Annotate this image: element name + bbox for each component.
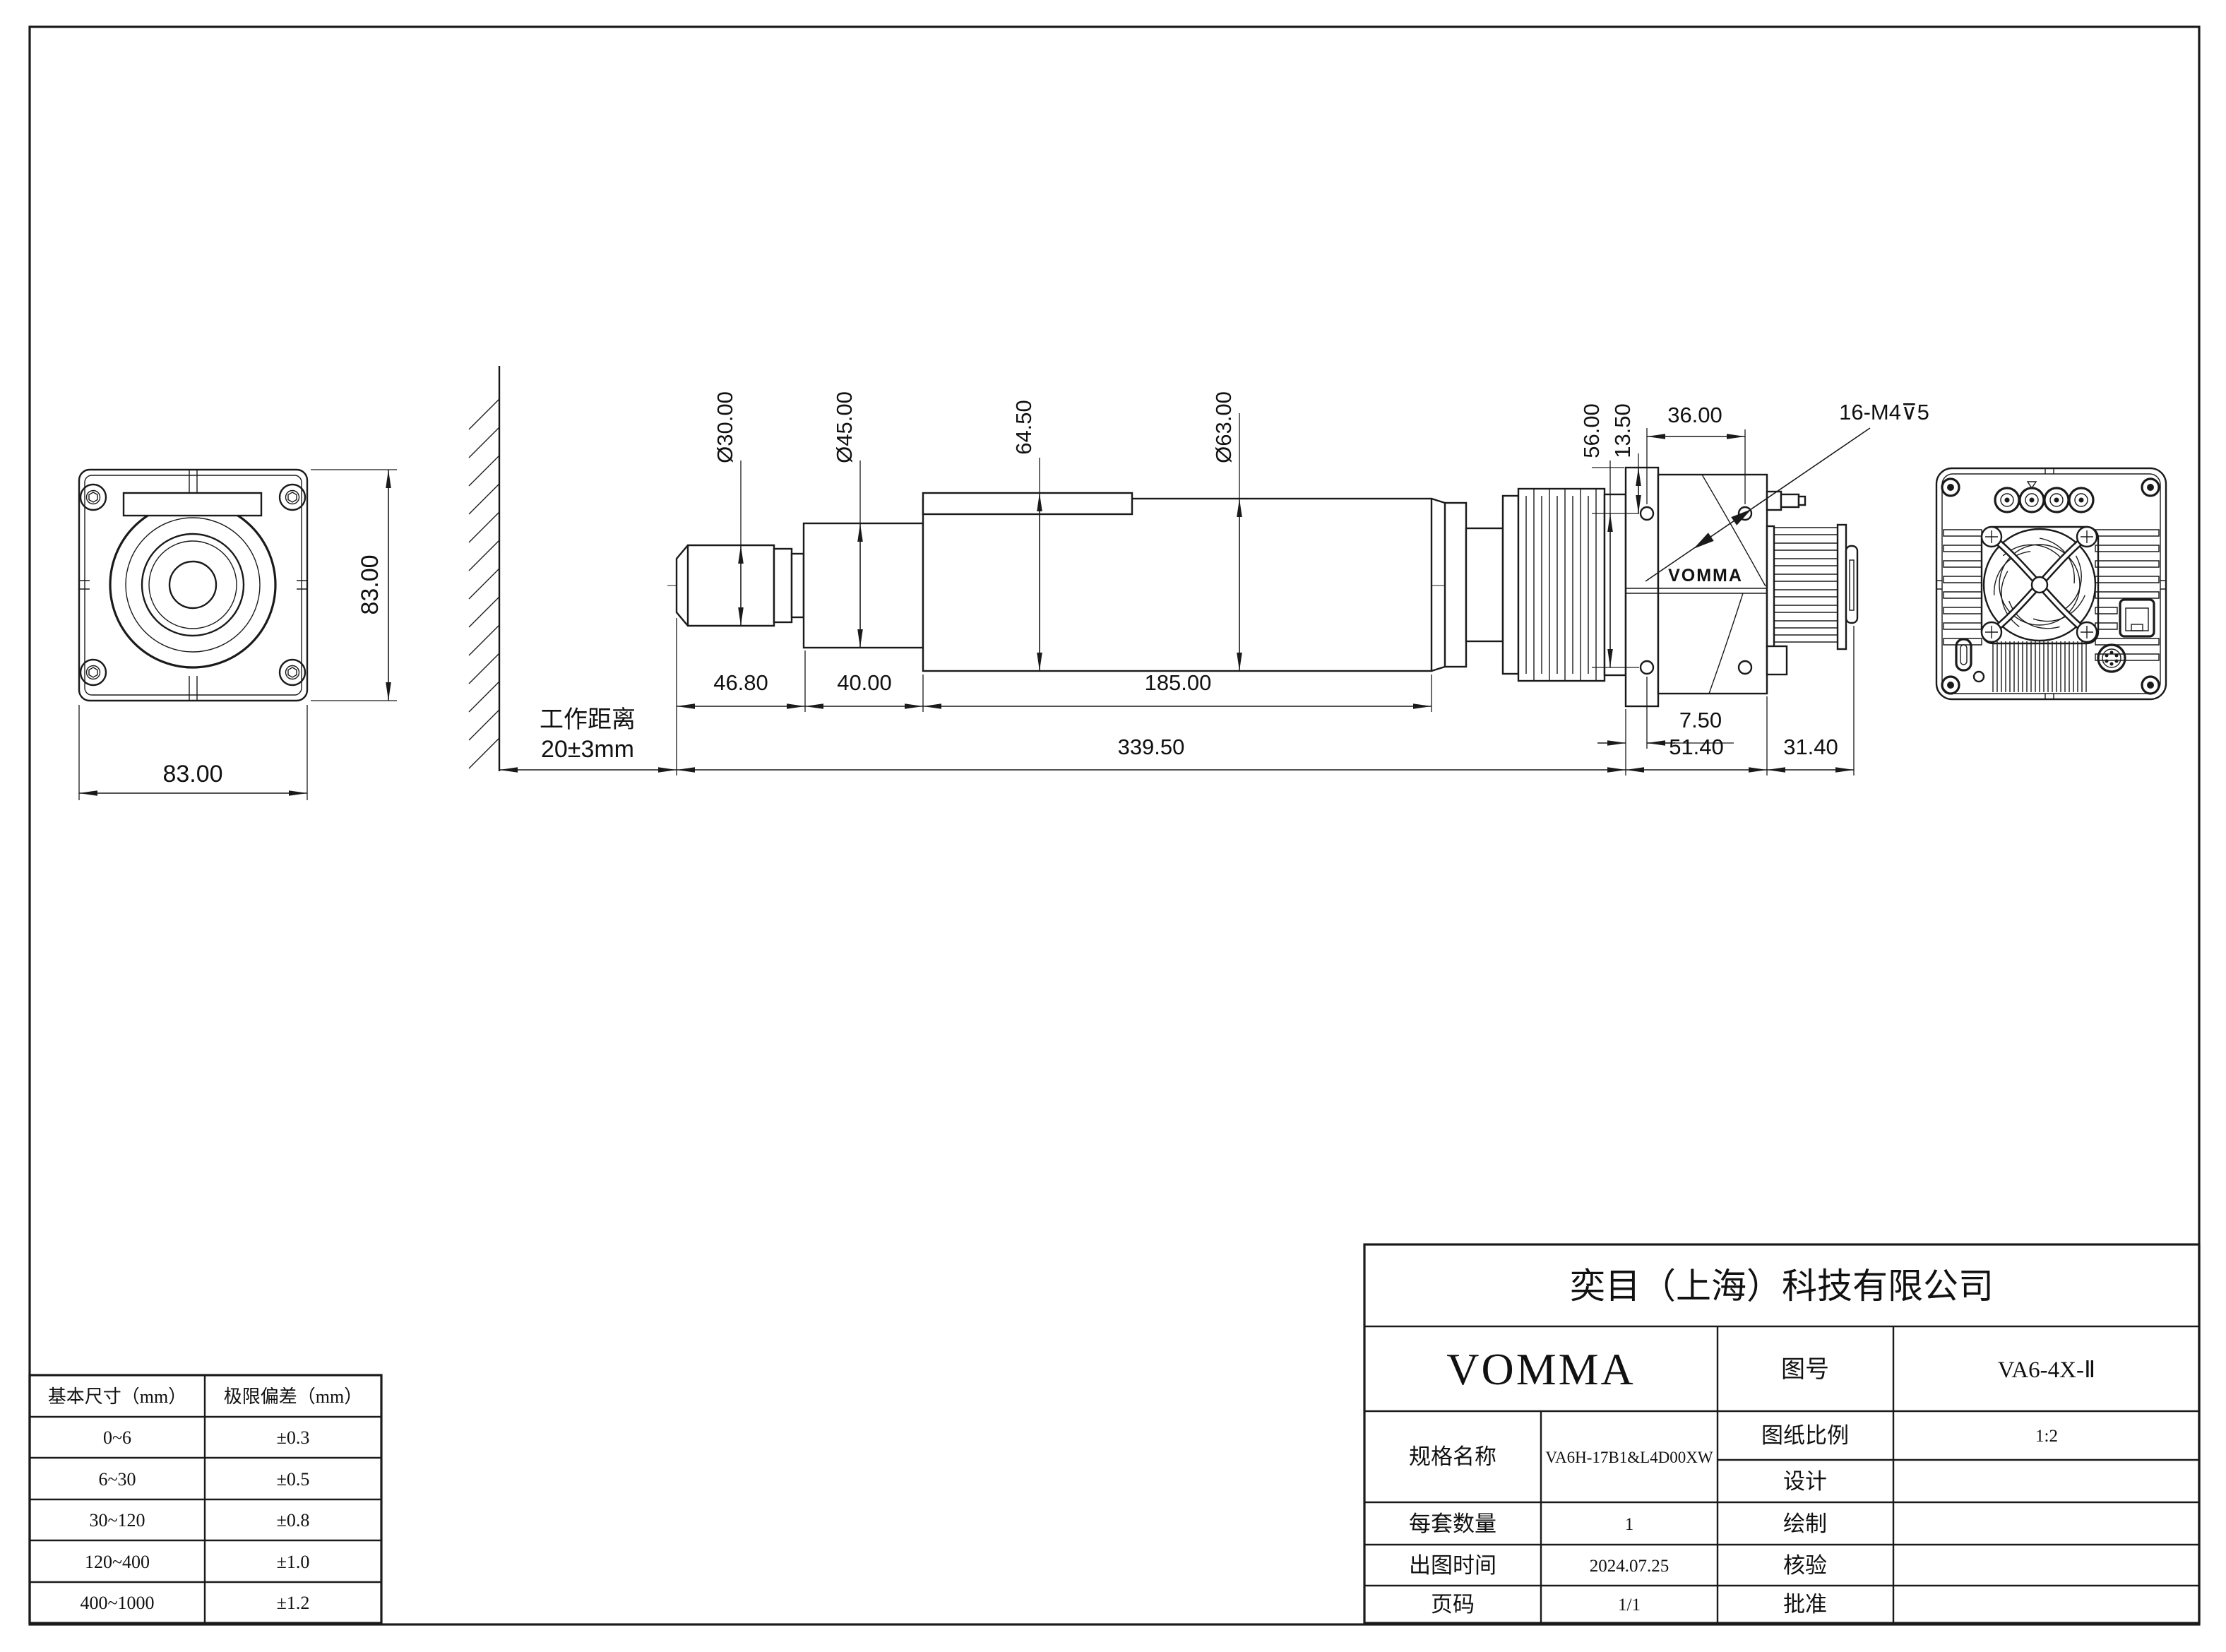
scale-label: 图纸比例 [1761, 1423, 1849, 1448]
svg-text:400~1000: 400~1000 [80, 1593, 154, 1613]
camera-body: VOMMA [1626, 468, 1857, 706]
front-top-bar [124, 493, 261, 516]
tolerance-table: 基本尺寸（mm） 极限偏差（mm） 0~6 ±0.3 6~30 ±0.5 30~… [30, 1375, 381, 1623]
svg-text:±0.5: ±0.5 [277, 1469, 310, 1490]
camera-heatsink [1767, 525, 1846, 649]
working-distance-label: 工作距离 [540, 706, 636, 733]
front-view: 83.00 83.00 [79, 470, 397, 800]
page-label: 页码 [1431, 1592, 1475, 1617]
thread-callout-label: 16-M4⊽5 [1839, 400, 1929, 424]
tol-header-limit: 极限偏差（mm） [224, 1386, 362, 1407]
barrel-flange [923, 493, 1132, 514]
page-value: 1/1 [1618, 1595, 1641, 1615]
svg-text:±0.3: ±0.3 [277, 1427, 310, 1448]
len-mid-label: 40.00 [837, 670, 892, 695]
tol-header-basic: 基本尺寸（mm） [48, 1386, 186, 1407]
camera-foot [1767, 646, 1787, 675]
bellows [1518, 489, 1605, 681]
qty-value: 1 [1625, 1515, 1634, 1534]
scale-value: 1:2 [2035, 1427, 2058, 1446]
flange-height-label: 64.50 [1011, 400, 1036, 455]
cam-rear-label: 31.40 [1783, 735, 1838, 759]
dia-mid-label: Ø45.00 [832, 391, 857, 463]
svg-text:±1.2: ±1.2 [277, 1593, 310, 1613]
length-dimensions: 46.80 40.00 185.00 [677, 670, 1432, 706]
svg-text:120~400: 120~400 [85, 1552, 150, 1572]
rear-view [1936, 468, 2166, 699]
date-value: 2024.07.25 [1590, 1557, 1669, 1576]
table-row: 30~120 ±0.8 [89, 1510, 309, 1531]
side-view: VOMMA Ø30.00 Ø45.00 64.50 [469, 366, 1929, 776]
title-block: 奕目（上海）科技有限公司 VOMMA 图号 VA6-4X-Ⅱ 规格名称 VA6H… [1364, 1244, 2199, 1623]
dia-barrel-label: Ø63.00 [1211, 391, 1236, 463]
camera-logo: VOMMA [1668, 566, 1743, 586]
svg-text:0~6: 0~6 [103, 1427, 131, 1448]
dia-lens-label: Ø30.00 [713, 391, 737, 463]
draft-label: 绘制 [1783, 1511, 1827, 1536]
lens-mid-block [804, 523, 923, 648]
barrel-tail [1432, 489, 1626, 681]
company-name: 奕目（上海）科技有限公司 [1570, 1266, 1994, 1306]
cam-height-label: 56.00 [1579, 403, 1604, 458]
table-row: 0~6 ±0.3 [103, 1427, 309, 1448]
sheet-border [30, 27, 2199, 1624]
qty-label: 每套数量 [1409, 1511, 1496, 1536]
len-nose-label: 46.80 [713, 670, 768, 695]
front-height-label: 83.00 [357, 554, 383, 614]
svg-text:±1.0: ±1.0 [277, 1552, 310, 1572]
brand-name: VOMMA [1446, 1344, 1635, 1394]
spec-label: 规格名称 [1409, 1444, 1496, 1469]
working-distance-value: 20±3mm [541, 736, 634, 763]
overall-dimensions: 工作距离 20±3mm 339.50 51.40 31.40 [499, 706, 1854, 770]
drawing-no-label: 图号 [1781, 1357, 1829, 1383]
design-label: 设计 [1783, 1469, 1827, 1494]
svg-text:6~30: 6~30 [98, 1469, 136, 1490]
cam-face-offset-label: 7.50 [1679, 708, 1722, 732]
wall-hatching [469, 366, 499, 771]
len-total-label: 339.50 [1118, 735, 1185, 759]
table-row: 120~400 ±1.0 [85, 1552, 309, 1572]
svg-text:30~120: 30~120 [89, 1510, 145, 1531]
date-label: 出图时间 [1409, 1553, 1496, 1578]
front-width-label: 83.00 [162, 761, 222, 788]
table-row: 400~1000 ±1.2 [80, 1593, 309, 1613]
svg-text:±0.8: ±0.8 [277, 1510, 310, 1531]
rear-connector-side [1846, 546, 1857, 623]
lens-nose [677, 545, 804, 626]
cam-hole-offset-label: 13.50 [1610, 403, 1635, 458]
lens-barrel [923, 499, 1432, 671]
cam-length-label: 51.40 [1669, 735, 1724, 759]
engineering-drawing-sheet: 83.00 83.00 [0, 0, 2226, 1652]
drawing-no-value: VA6-4X-Ⅱ [1998, 1357, 2095, 1383]
cam-hole-span-label: 36.00 [1667, 403, 1722, 427]
spec-value: VA6H-17B1&L4D00XW [1545, 1449, 1713, 1466]
check-label: 核验 [1783, 1553, 1827, 1578]
approve-label: 批准 [1783, 1592, 1827, 1617]
len-barrel-label: 185.00 [1145, 670, 1212, 695]
